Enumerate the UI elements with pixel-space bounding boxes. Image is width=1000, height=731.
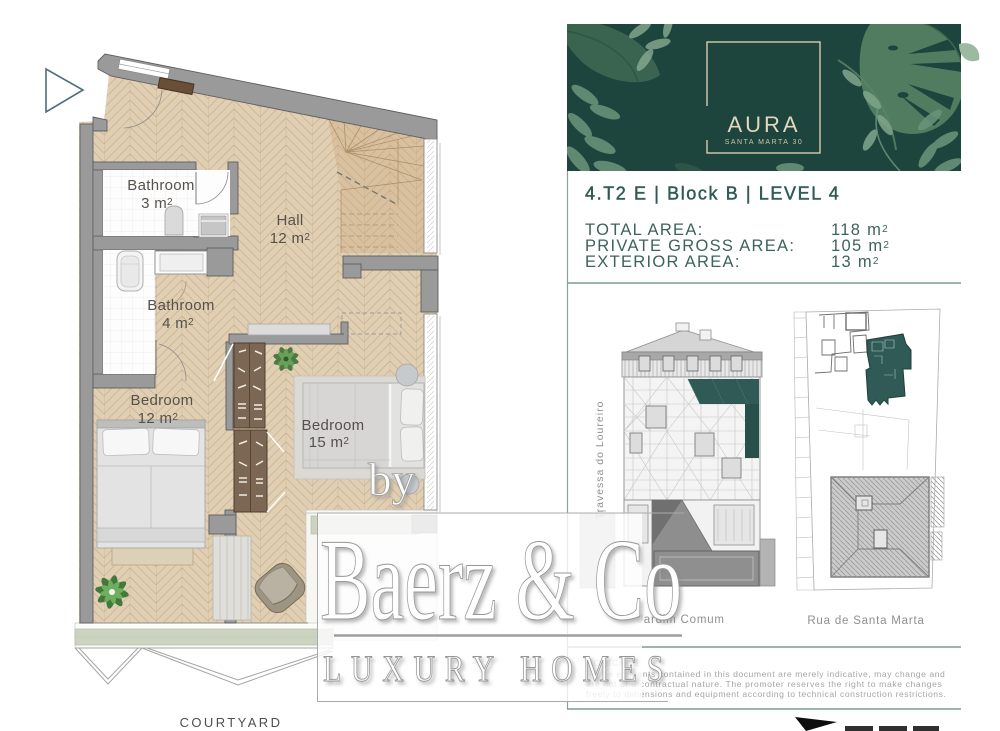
svg-text:Baerz & Co: Baerz & Co <box>320 516 682 645</box>
svg-text:EXTERIOR AREA:: EXTERIOR AREA: <box>585 253 741 271</box>
svg-text:SANTA MARTA 30: SANTA MARTA 30 <box>725 139 804 146</box>
svg-text:12 m2: 12 m2 <box>138 410 179 427</box>
svg-text:12 m2: 12 m2 <box>270 230 311 247</box>
svg-text:4.T2 E | Block B | LEVEL 4: 4.T2 E | Block B | LEVEL 4 <box>585 184 840 204</box>
svg-text:COURTYARD: COURTYARD <box>180 715 283 730</box>
svg-text:13 m2: 13 m2 <box>831 253 880 271</box>
svg-text:Bathroom: Bathroom <box>127 177 194 194</box>
svg-text:Bathroom: Bathroom <box>147 297 214 314</box>
svg-text:Hall: Hall <box>276 212 303 229</box>
svg-text:by: by <box>368 454 416 506</box>
svg-text:Bedroom: Bedroom <box>131 392 194 409</box>
svg-text:Travessa do Loureiro: Travessa do Loureiro <box>594 401 606 520</box>
svg-text:Bedroom: Bedroom <box>302 417 365 434</box>
svg-text:AURA: AURA <box>727 112 800 137</box>
svg-text:LUXURY HOMES: LUXURY HOMES <box>323 649 673 690</box>
svg-text:Rua de Santa Marta: Rua de Santa Marta <box>807 615 924 627</box>
svg-text:15 m2: 15 m2 <box>309 434 350 451</box>
